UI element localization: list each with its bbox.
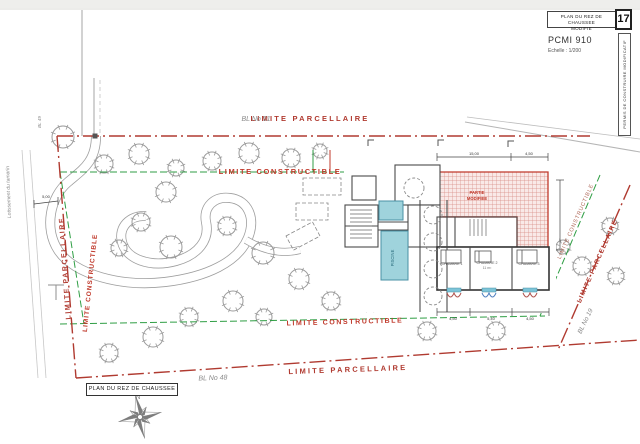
bottom-plan-title: PLAN DU REZ DE CHAUSSEE [86,383,178,396]
room-area-chambre-2: 11 m² [483,266,492,270]
room-label-chambre-1: CHAMBRE 1 [442,262,463,266]
building-footprint [34,153,564,316]
room-label-chambre-3: CHAMBRE 3 [519,262,540,266]
dim-bottom-1: 4,50 [449,316,458,321]
modified-zone-label-1: PARTIE [469,190,484,195]
limite-constructible-bottom: LIMITE CONSTRUCTIBLE [286,317,403,327]
sheet-edge [0,0,640,9]
side-strip: PERMIS DE CONSTRUIRE MODIFICATIF [618,33,631,136]
title-block: PLAN DU REZ DE CHAUSSEE MODIFIE [547,11,616,28]
scale-label: Echelle : 1/200 [548,48,581,54]
dim-bottom-3: 4,50 [526,316,535,321]
sheet-number: 17 [615,9,632,30]
site-plan-canvas: N LIMITE PARCELLAIRE BL No 51 LIMITE CON… [0,0,640,444]
limite-parcellaire-right: LIMITE PARCELLAIRE [576,219,619,304]
title-line-1: PLAN DU REZ DE CHAUSSEE [548,14,615,26]
title-line-2: MODIFIE [548,26,615,32]
side-strip-label: PERMIS DE CONSTRUIRE MODIFICATIF [622,40,627,129]
bl-19-label: BL No 19 [577,307,595,335]
street-name-label: Lotissement du tamarin [5,166,13,218]
dim-top-2: 4,50 [525,151,534,156]
dim-top-1: 15,00 [469,151,480,156]
limite-constructible-left: LIMITE CONSTRUCTIBLE [82,233,99,332]
modified-zone-label-2: MODIFIEE [467,196,487,201]
limite-parcellaire-bottom: LIMITE PARCELLAIRE [288,363,407,376]
room-label-chambre-2: CHAMBRE 2 [477,261,498,265]
dim-bottom-2: 5,40 [487,316,496,321]
limite-constructible-top: LIMITE CONSTRUCTIBLE [219,167,342,176]
drawing-sheet: N LIMITE PARCELLAIRE BL No 51 LIMITE CON… [0,0,640,444]
pool-label: PISCINE [390,249,395,266]
dim-access: 5,00 [42,194,51,199]
bl-51-label: BL No 51 [241,116,270,123]
limite-constructible-right: LIMITE CONSTRUCTIBLE [557,183,596,260]
swimming-pool [378,201,408,280]
parking-spaces [286,178,341,250]
bl-48-label: BL No 48 [198,374,227,382]
document-reference: PCMI 910 [548,35,592,45]
bl-49-label: BL 49 [37,116,42,128]
